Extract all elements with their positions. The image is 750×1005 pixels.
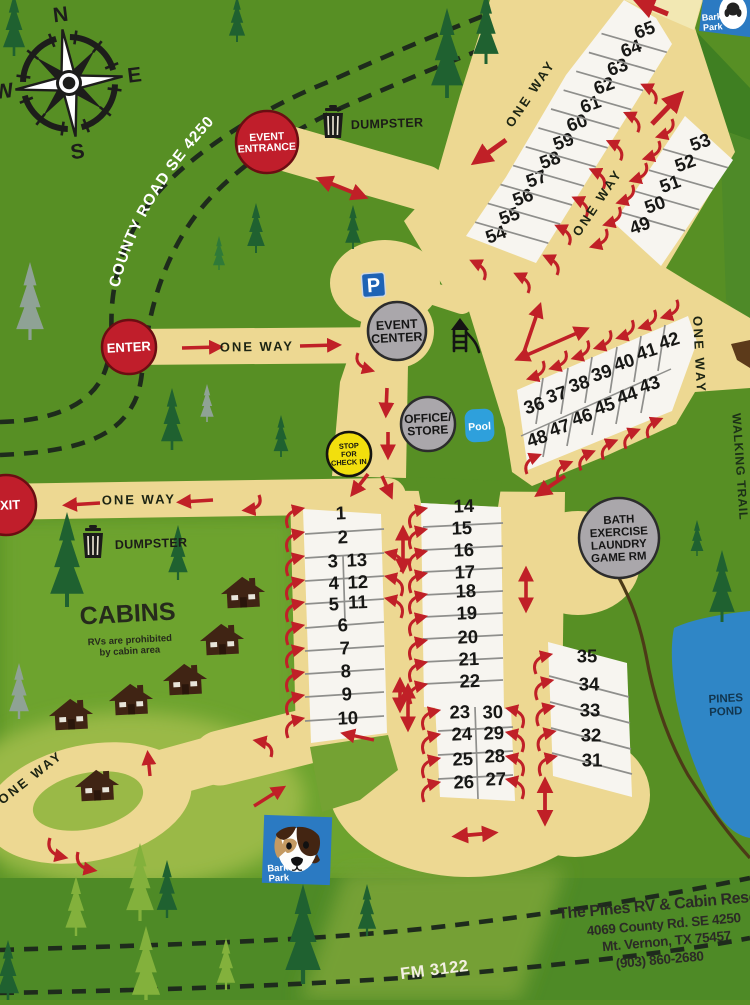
svg-text:EXIT: EXIT	[0, 497, 21, 513]
svg-text:Park: Park	[268, 872, 290, 884]
svg-text:19: 19	[456, 602, 477, 624]
svg-text:15: 15	[451, 517, 472, 539]
svg-text:30: 30	[482, 701, 503, 723]
svg-text:CABINS: CABINS	[79, 598, 176, 631]
svg-text:27: 27	[485, 768, 506, 790]
svg-text:25: 25	[452, 748, 473, 770]
svg-text:ONE WAY: ONE WAY	[102, 491, 176, 507]
svg-text:3: 3	[327, 550, 338, 571]
svg-text:E: E	[126, 63, 143, 88]
svg-text:35: 35	[577, 645, 598, 666]
svg-text:10: 10	[337, 707, 358, 729]
svg-text:BATH: BATH	[603, 513, 635, 527]
svg-text:34: 34	[579, 673, 600, 694]
svg-text:4: 4	[328, 572, 340, 593]
svg-text:24: 24	[451, 723, 473, 745]
svg-text:2: 2	[337, 526, 348, 547]
svg-text:DUMPSTER: DUMPSTER	[115, 535, 188, 552]
svg-text:7: 7	[339, 637, 350, 658]
svg-text:1: 1	[335, 502, 346, 523]
svg-text:POND: POND	[709, 705, 743, 719]
svg-text:23: 23	[449, 701, 470, 723]
svg-text:28: 28	[484, 745, 505, 767]
svg-text:13: 13	[346, 549, 367, 571]
svg-text:32: 32	[581, 724, 602, 745]
svg-text:26: 26	[453, 771, 474, 793]
svg-text:PINES: PINES	[708, 692, 743, 706]
svg-text:ONE WAY: ONE WAY	[220, 338, 294, 354]
svg-text:12: 12	[347, 571, 368, 593]
svg-text:9: 9	[341, 683, 352, 704]
svg-text:31: 31	[582, 749, 603, 770]
svg-text:ENTER: ENTER	[106, 338, 151, 355]
svg-text:CHECK IN: CHECK IN	[331, 457, 367, 468]
svg-text:16: 16	[453, 539, 474, 561]
svg-text:8: 8	[340, 660, 351, 681]
svg-text:S: S	[69, 140, 86, 165]
svg-text:18: 18	[455, 580, 476, 602]
svg-text:Park: Park	[703, 21, 724, 32]
svg-text:CENTER: CENTER	[371, 330, 423, 347]
svg-text:P: P	[366, 275, 381, 298]
svg-text:DUMPSTER: DUMPSTER	[351, 115, 424, 132]
svg-text:14: 14	[453, 495, 475, 517]
svg-text:29: 29	[483, 722, 504, 744]
svg-text:20: 20	[457, 626, 478, 648]
svg-text:33: 33	[580, 699, 601, 720]
svg-text:5: 5	[328, 593, 339, 614]
svg-text:STORE: STORE	[407, 422, 449, 438]
svg-text:11: 11	[348, 591, 368, 613]
svg-text:22: 22	[459, 670, 480, 692]
svg-text:N: N	[52, 3, 70, 28]
svg-text:21: 21	[458, 648, 479, 670]
svg-text:6: 6	[337, 614, 348, 635]
svg-text:Pool: Pool	[468, 420, 491, 433]
